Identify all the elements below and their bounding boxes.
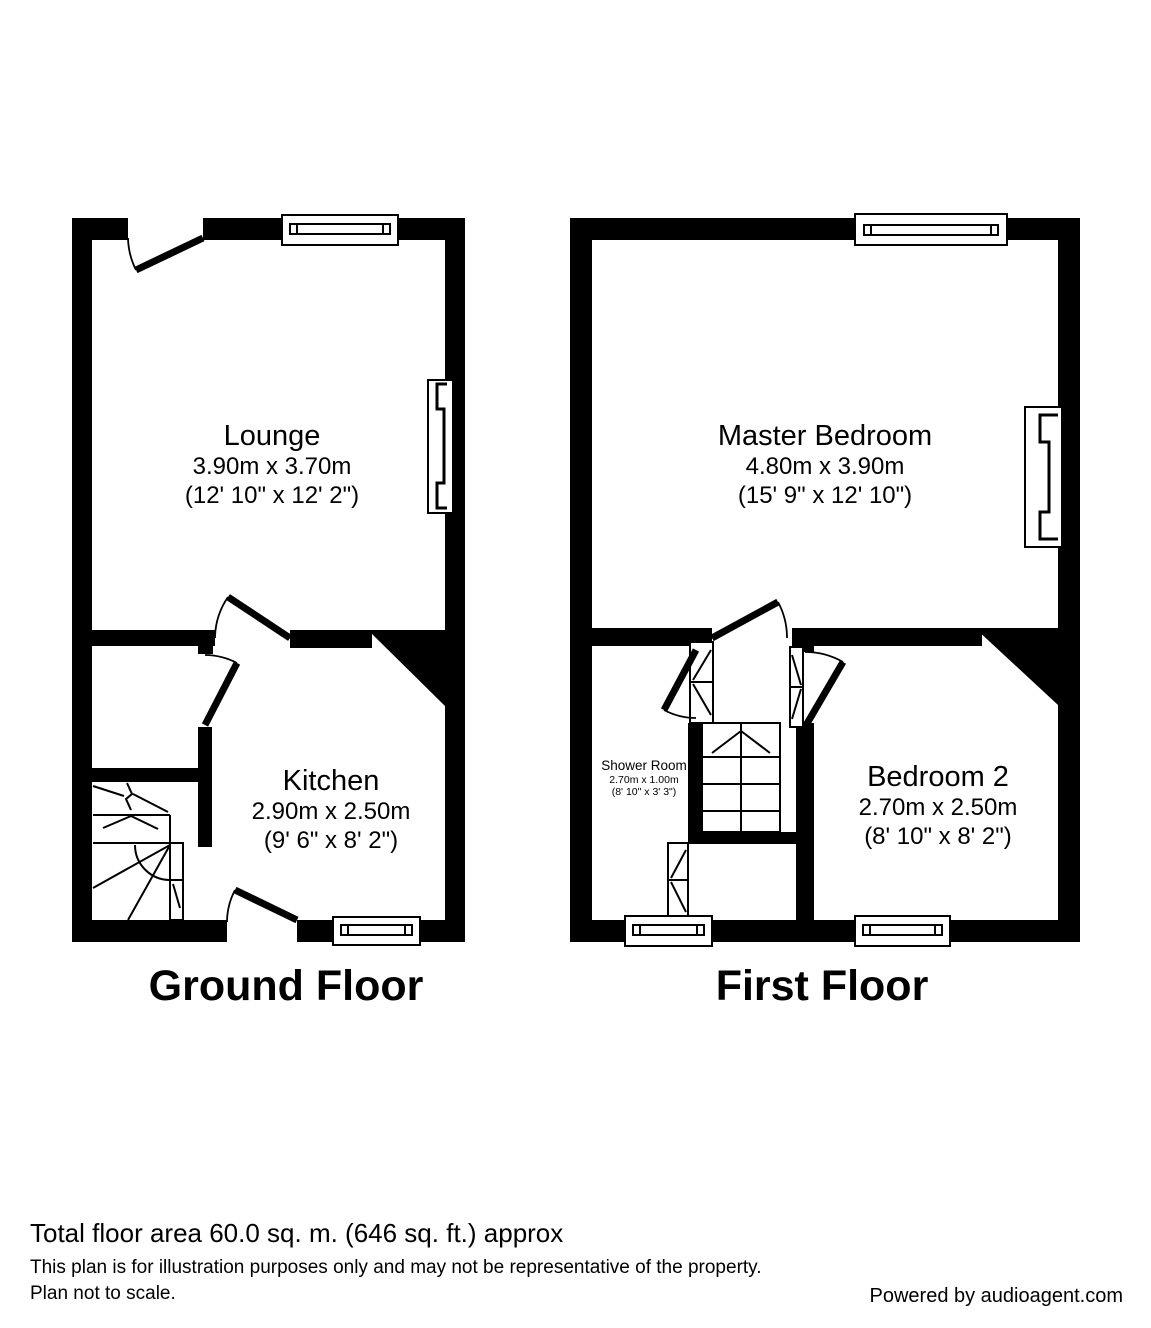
room-dim-imperial: (12' 10" x 12' 2"): [185, 482, 359, 510]
room-dim-imperial: (15' 9" x 12' 10"): [718, 482, 932, 510]
door-panel: [790, 647, 803, 727]
door-panel: [668, 843, 688, 920]
room-dim-metric: 2.70m x 1.00m: [601, 774, 687, 786]
room-dim-metric: 4.80m x 3.90m: [718, 453, 932, 481]
disclaimer-line-2: Plan not to scale.: [30, 1283, 176, 1305]
window-icon: [855, 214, 1007, 245]
room-name: Shower Room: [601, 758, 687, 774]
door-icon: [205, 655, 237, 725]
floorplan-page: Lounge 3.90m x 3.70m (12' 10" x 12' 2") …: [0, 0, 1151, 1328]
room-dim-imperial: (9' 6" x 8' 2"): [252, 827, 411, 855]
door-opening: [128, 216, 203, 242]
door-icon: [128, 238, 203, 270]
door-icon: [805, 652, 843, 727]
room-label-master-bedroom: Master Bedroom 4.80m x 3.90m (15' 9" x 1…: [718, 419, 932, 510]
floorplan-graphics: [0, 0, 1151, 1328]
disclaimer-line-1: This plan is for illustration purposes o…: [30, 1257, 762, 1279]
room-name: Lounge: [185, 419, 359, 453]
room-dim-metric: 3.90m x 3.70m: [185, 453, 359, 481]
window-icon: [333, 917, 420, 945]
room-label-lounge: Lounge 3.90m x 3.70m (12' 10" x 12' 2"): [185, 419, 359, 510]
door-icon: [712, 602, 787, 638]
window-icon: [1025, 407, 1062, 547]
stairs-icon: [702, 723, 780, 832]
room-name: Kitchen: [252, 764, 411, 798]
window-icon: [282, 215, 398, 245]
room-label-kitchen: Kitchen 2.90m x 2.50m (9' 6" x 8' 2"): [252, 764, 411, 855]
room-name: Master Bedroom: [718, 419, 932, 453]
room-dim-imperial: (8' 10" x 8' 2"): [859, 823, 1018, 851]
room-dim-imperial: (8' 10" x 3' 3"): [601, 786, 687, 798]
ground-floor-label: Ground Floor: [149, 962, 424, 1011]
stairs-icon: [93, 783, 183, 920]
window-icon: [428, 380, 453, 513]
door-opening: [227, 918, 297, 944]
first-floor-label: First Floor: [716, 962, 929, 1011]
window-icon: [855, 916, 950, 946]
window-icon: [625, 916, 712, 946]
room-dim-metric: 2.90m x 2.50m: [252, 798, 411, 826]
room-name: Bedroom 2: [859, 760, 1018, 794]
room-dim-metric: 2.70m x 2.50m: [859, 794, 1018, 822]
powered-by-text: Powered by audioagent.com: [870, 1285, 1124, 1308]
total-floor-area-text: Total floor area 60.0 sq. m. (646 sq. ft…: [30, 1218, 563, 1249]
room-label-bedroom-2: Bedroom 2 2.70m x 2.50m (8' 10" x 8' 2"): [859, 760, 1018, 851]
door-icon: [227, 890, 297, 922]
door-icon: [215, 597, 290, 638]
room-label-shower-room: Shower Room 2.70m x 1.00m (8' 10" x 3' 3…: [601, 758, 687, 799]
